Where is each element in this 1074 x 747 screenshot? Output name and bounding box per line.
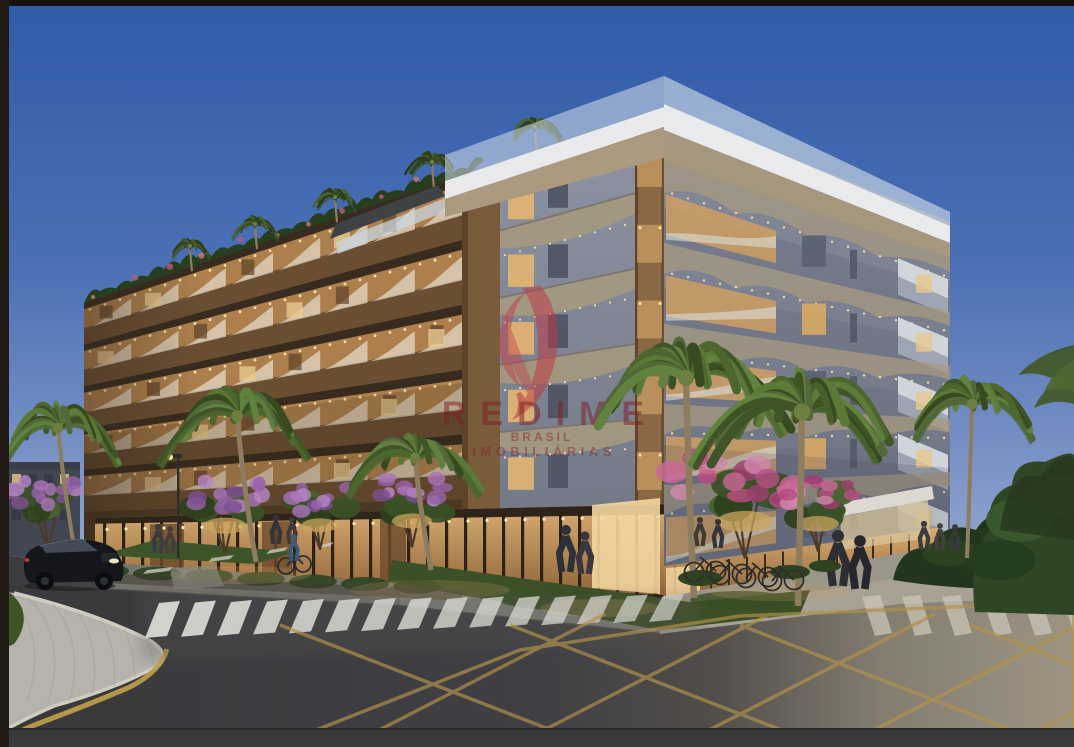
svg-text:IMOBILIÁRIAS: IMOBILIÁRIAS bbox=[472, 444, 616, 459]
svg-text:REDIME: REDIME bbox=[442, 395, 658, 433]
svg-text:BRASIL: BRASIL bbox=[511, 430, 574, 444]
